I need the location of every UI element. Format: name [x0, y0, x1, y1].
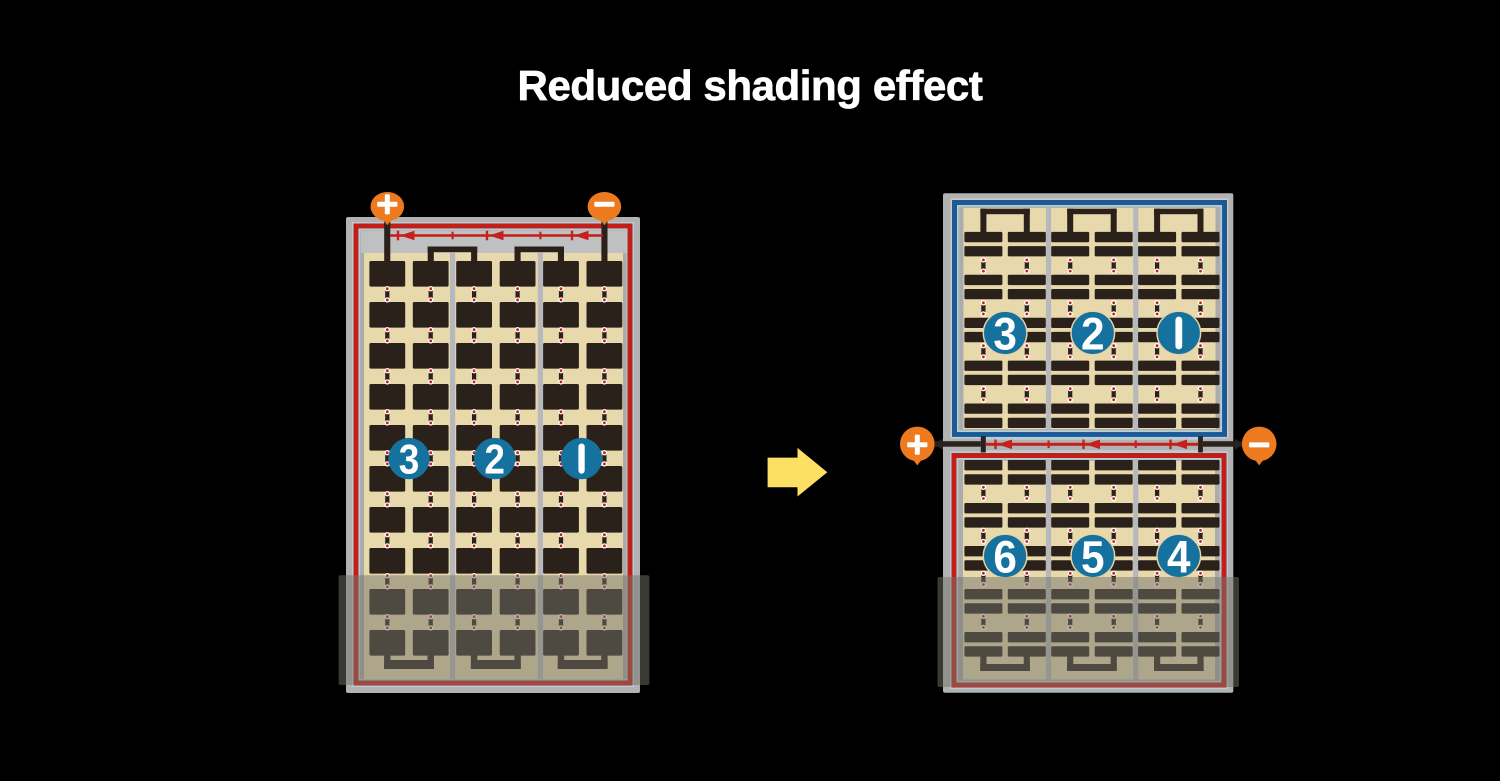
- svg-text:2: 2: [1081, 309, 1105, 360]
- svg-text:5: 5: [1081, 532, 1105, 583]
- svg-text:3: 3: [993, 309, 1017, 360]
- svg-text:3: 3: [399, 436, 420, 483]
- svg-text:2: 2: [484, 436, 505, 483]
- svg-text:6: 6: [993, 532, 1017, 583]
- svg-text:4: 4: [1167, 532, 1191, 583]
